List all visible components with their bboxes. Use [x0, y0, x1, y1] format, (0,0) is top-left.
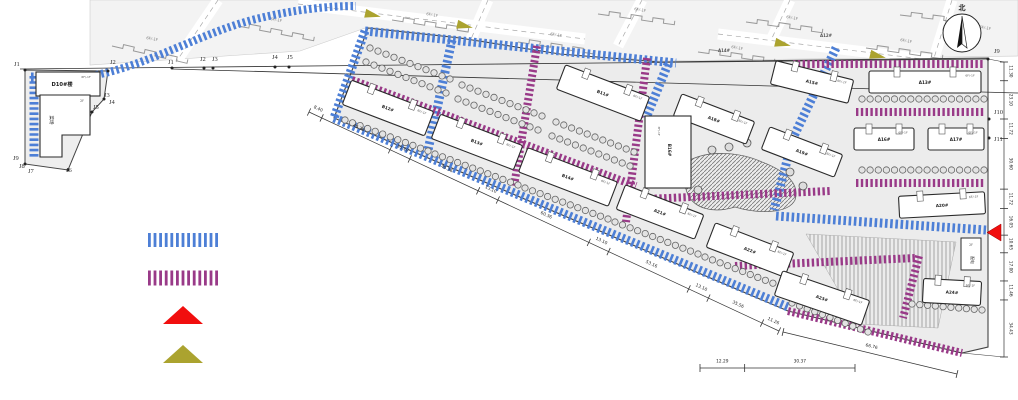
- tree-icon: [963, 306, 969, 312]
- dimension-value: 35.56: [731, 299, 745, 310]
- dimension-tick: [760, 319, 763, 326]
- tree-icon: [672, 242, 678, 248]
- tree-icon: [432, 151, 438, 157]
- tree-icon: [470, 165, 476, 171]
- tree-icon: [786, 168, 794, 176]
- existing-building-label: A12#: [820, 33, 833, 38]
- tree-icon: [552, 196, 558, 202]
- tree-icon: [515, 104, 521, 110]
- stair-core: [866, 124, 872, 134]
- tree-icon: [539, 113, 545, 119]
- tree-icon: [561, 122, 567, 128]
- survey-point-dot: [274, 66, 277, 69]
- survey-point-dot: [107, 70, 110, 73]
- dimension-tick: [707, 294, 710, 301]
- tree-icon: [867, 167, 873, 173]
- tree-icon: [665, 239, 671, 245]
- tree-icon: [596, 151, 602, 157]
- tree-icon: [883, 167, 889, 173]
- tree-icon: [395, 137, 401, 143]
- tree-icon: [487, 108, 493, 114]
- tree-icon: [732, 265, 738, 271]
- survey-point-dot: [987, 58, 990, 61]
- dimension-value: 16.05: [1007, 216, 1013, 229]
- building-label: A17#: [950, 137, 963, 142]
- dimension-value: 8.40: [312, 104, 323, 114]
- tree-icon: [527, 124, 533, 130]
- dimension-value: 11.72: [1007, 123, 1013, 136]
- tree-icon: [702, 254, 708, 260]
- tree-icon: [924, 167, 930, 173]
- tree-icon: [940, 167, 946, 173]
- tree-icon: [439, 154, 445, 160]
- tree-icon: [576, 128, 582, 134]
- tree-icon: [850, 323, 856, 329]
- tree-icon: [603, 154, 609, 160]
- dimension-tick: [476, 187, 479, 194]
- stair-core: [950, 67, 956, 77]
- tree-icon: [477, 168, 483, 174]
- tree-icon: [979, 307, 985, 313]
- tree-icon: [485, 171, 491, 177]
- tree-icon: [932, 96, 938, 102]
- tree-icon: [956, 96, 962, 102]
- tree-icon: [582, 207, 588, 213]
- dimension-value: 23.10: [1008, 94, 1014, 107]
- tree-icon: [415, 63, 421, 69]
- tree-icon: [419, 81, 425, 87]
- tree-icon: [891, 167, 897, 173]
- building-label: B16#: [667, 144, 672, 157]
- tree-icon: [372, 128, 378, 134]
- building-label: D10#楼: [51, 80, 73, 88]
- stair-core: [960, 189, 967, 199]
- building-floors: 6F/-1F: [969, 195, 979, 199]
- tree-icon: [491, 94, 497, 100]
- tree-icon: [940, 96, 946, 102]
- tree-icon: [917, 302, 923, 308]
- tree-icon: [900, 96, 906, 102]
- tree-icon: [956, 305, 962, 311]
- building-label: A24#: [946, 289, 959, 295]
- tree-icon: [883, 96, 889, 102]
- tree-icon: [981, 96, 987, 102]
- tree-icon: [916, 167, 922, 173]
- tree-icon: [423, 67, 429, 73]
- stair-core: [917, 191, 924, 201]
- tree-icon: [463, 99, 469, 105]
- tree-icon: [940, 304, 946, 310]
- tree-icon: [431, 70, 437, 76]
- tree-icon: [627, 225, 633, 231]
- tree-icon: [387, 68, 393, 74]
- tree-icon: [567, 202, 573, 208]
- stair-core: [939, 124, 945, 134]
- dimension-tick: [687, 285, 690, 292]
- tree-icon: [948, 304, 954, 310]
- building: A16#6F/-1F: [854, 124, 914, 150]
- legend-red-triangle-swatch: [163, 306, 203, 324]
- tree-icon: [443, 90, 449, 96]
- tree-icon: [387, 134, 393, 140]
- tree-icon: [650, 233, 656, 239]
- dimension-value: 17.00: [1008, 261, 1014, 274]
- tree-icon: [575, 205, 581, 211]
- tree-icon: [631, 149, 637, 155]
- existing-building-label: A14#: [718, 48, 731, 53]
- tree-icon: [956, 167, 962, 173]
- dimension-tick: [307, 108, 310, 115]
- tree-icon: [924, 96, 930, 102]
- tree-icon: [799, 182, 807, 190]
- tree-icon: [965, 96, 971, 102]
- building-floors: 3F/-1F: [657, 126, 661, 136]
- tree-icon: [363, 59, 369, 65]
- tree-icon: [483, 91, 489, 97]
- tree-icon: [607, 140, 613, 146]
- dimension-extension: [962, 353, 1004, 357]
- dimension-extension: [988, 59, 1004, 62]
- tree-icon: [375, 48, 381, 54]
- tree-icon: [537, 190, 543, 196]
- north-label: 北: [959, 3, 966, 12]
- tree-icon: [549, 133, 555, 139]
- tree-icon: [973, 167, 979, 173]
- tree-icon: [427, 84, 433, 90]
- tree-icon: [908, 96, 914, 102]
- building-label: A13#: [919, 80, 932, 85]
- survey-point-dot: [212, 67, 215, 70]
- tree-icon: [612, 219, 618, 225]
- tree-icon: [379, 65, 385, 71]
- survey-point-label: J5: [93, 104, 99, 111]
- building-floors: 6F/-1F: [965, 74, 975, 78]
- dimension-value: 34.43: [1008, 322, 1014, 335]
- tree-icon: [383, 51, 389, 57]
- tree-icon: [515, 182, 521, 188]
- tree-icon: [971, 306, 977, 312]
- dimension-value: 11.72: [1007, 193, 1013, 206]
- tree-icon: [535, 127, 541, 133]
- tree-icon: [544, 193, 550, 199]
- dimension-value: 66.76: [865, 342, 879, 351]
- survey-point-dot: [171, 67, 174, 70]
- building-floors: 6F/-1F: [968, 131, 978, 135]
- tree-icon: [417, 145, 423, 151]
- survey-point-label: J2: [200, 56, 206, 63]
- building-floors: 6F/-1F: [898, 131, 908, 135]
- tree-icon: [557, 136, 563, 142]
- site-plan-drawing: 6F/-1F6F/-1F6F/-1F6F/-1F6F/-1F6F/-1F6F/-…: [0, 0, 1018, 400]
- tree-icon: [857, 326, 863, 332]
- building-floors: 6F/-1F: [966, 283, 976, 287]
- tree-icon: [454, 159, 460, 165]
- stair-core: [935, 275, 942, 285]
- tree-icon: [605, 216, 611, 222]
- tree-icon: [909, 301, 915, 307]
- survey-point-label: J7: [28, 168, 35, 175]
- tree-icon: [435, 87, 441, 93]
- dimension-value: 30.60: [1008, 158, 1014, 171]
- survey-point-label: J3: [104, 92, 110, 99]
- tree-icon: [499, 97, 505, 103]
- dimension-value: 53.16: [645, 259, 659, 270]
- tree-icon: [623, 146, 629, 152]
- tree-icon: [932, 167, 938, 173]
- tree-icon: [399, 57, 405, 63]
- survey-point-label: J4: [272, 54, 279, 61]
- tree-icon: [519, 121, 525, 127]
- legend-olive-triangle-swatch: [163, 345, 203, 363]
- tree-icon: [865, 329, 871, 335]
- tree-icon: [657, 236, 663, 242]
- tree-icon: [755, 274, 761, 280]
- survey-point-label: J9: [994, 48, 1000, 55]
- tree-icon: [467, 85, 473, 91]
- building-floors: 2F: [80, 99, 84, 103]
- tree-icon: [973, 96, 979, 102]
- tree-icon: [981, 167, 987, 173]
- tree-icon: [724, 263, 730, 269]
- tree-icon: [619, 160, 625, 166]
- survey-point-label: J6: [66, 167, 73, 174]
- tree-icon: [717, 260, 723, 266]
- tree-icon: [522, 185, 528, 191]
- tree-icon: [380, 131, 386, 137]
- tree-icon: [680, 245, 686, 251]
- tree-icon: [500, 176, 506, 182]
- dimension-value: 12.29: [716, 359, 729, 365]
- tree-icon: [471, 102, 477, 108]
- tree-icon: [747, 271, 753, 277]
- dimension-tick: [320, 114, 323, 121]
- tree-icon: [694, 186, 702, 194]
- red-entrance-arrow-icon: [987, 224, 1001, 241]
- tree-icon: [367, 45, 373, 51]
- tree-icon: [627, 163, 633, 169]
- tree-icon: [611, 157, 617, 163]
- tree-icon: [859, 96, 865, 102]
- tree-icon: [859, 167, 865, 173]
- dimension-value: 10.65: [1008, 238, 1014, 251]
- dimension-tick: [587, 239, 590, 246]
- survey-point-label: J8: [19, 163, 25, 170]
- tree-icon: [391, 54, 397, 60]
- survey-point-label: J3: [212, 56, 218, 63]
- tree-icon: [511, 118, 517, 124]
- tree-icon: [965, 167, 971, 173]
- tree-icon: [580, 145, 586, 151]
- tree-icon: [564, 139, 570, 145]
- tree-icon: [455, 96, 461, 102]
- dimension-value: 13.10: [595, 236, 609, 247]
- tree-icon: [507, 100, 513, 106]
- tree-icon: [371, 62, 377, 68]
- tree-icon: [634, 228, 640, 234]
- tree-icon: [762, 277, 768, 283]
- tree-icon: [531, 110, 537, 116]
- tree-icon: [687, 248, 693, 254]
- tree-icon: [572, 142, 578, 148]
- tree-icon: [439, 73, 445, 79]
- tree-icon: [529, 188, 535, 194]
- tree-icon: [600, 137, 606, 143]
- dimension-tick: [607, 248, 610, 255]
- tree-icon: [900, 167, 906, 173]
- stair-core: [894, 67, 900, 77]
- tree-icon: [948, 96, 954, 102]
- tree-icon: [708, 146, 716, 154]
- dimension-value: 30.37: [794, 359, 807, 365]
- survey-point-dot: [24, 69, 27, 72]
- tree-icon: [425, 148, 431, 154]
- survey-point-label: J1: [168, 59, 174, 66]
- dimension-value: 13.10: [694, 282, 708, 293]
- dimension-tick: [388, 146, 391, 153]
- tree-icon: [410, 142, 416, 148]
- tree-icon: [695, 251, 701, 257]
- entrance-arrow: [987, 224, 1001, 241]
- legend: [148, 240, 218, 363]
- tree-icon: [560, 199, 566, 205]
- tree-icon: [875, 96, 881, 102]
- tree-icon: [495, 111, 501, 117]
- tree-icon: [447, 156, 453, 162]
- survey-point-dot: [988, 137, 991, 140]
- building-label: A20#: [936, 202, 949, 208]
- tree-icon: [479, 105, 485, 111]
- tree-icon: [619, 222, 625, 228]
- tree-icon: [891, 96, 897, 102]
- survey-point-label: J2: [110, 59, 116, 66]
- survey-point-dot: [288, 66, 291, 69]
- dimension-tick: [496, 196, 499, 203]
- building: A13#6F/-1F: [869, 67, 981, 93]
- tree-icon: [411, 77, 417, 83]
- tree-icon: [642, 230, 648, 236]
- dimension-value: 11.46: [1008, 284, 1014, 297]
- tree-icon: [725, 143, 733, 151]
- tree-icon: [908, 167, 914, 173]
- building-floors: 6F/-1F: [81, 75, 91, 79]
- tree-icon: [459, 82, 465, 88]
- tree-icon: [447, 76, 453, 82]
- survey-point-dot: [988, 118, 991, 121]
- tree-icon: [740, 268, 746, 274]
- dimension-tick: [777, 327, 780, 334]
- dimension-value: 11.30: [1008, 65, 1014, 78]
- site-plan-canvas: 6F/-1F6F/-1F6F/-1F6F/-1F6F/-1F6F/-1F6F/-…: [0, 0, 1018, 400]
- building-label: 配电: [970, 256, 975, 264]
- tree-icon: [492, 173, 498, 179]
- survey-point-label: J9: [13, 155, 19, 162]
- survey-point-label: J1: [14, 61, 20, 68]
- tree-icon: [553, 119, 559, 125]
- tree-icon: [709, 257, 715, 263]
- tree-icon: [462, 162, 468, 168]
- tree-icon: [590, 210, 596, 216]
- dimension-value: 11.26: [766, 316, 780, 327]
- tree-icon: [402, 139, 408, 145]
- survey-point-label: J4: [109, 99, 116, 106]
- tree-icon: [770, 280, 776, 286]
- tree-icon: [523, 107, 529, 113]
- tree-icon: [597, 213, 603, 219]
- building-label: A16#: [878, 137, 891, 142]
- building-label: 菜场: [48, 116, 55, 125]
- tree-icon: [507, 179, 513, 185]
- tree-icon: [342, 117, 348, 123]
- building: A17#6F/-1F: [928, 124, 984, 150]
- survey-point-label: J5: [287, 54, 293, 61]
- tree-icon: [407, 60, 413, 66]
- building-floors: 2F: [969, 243, 973, 247]
- survey-point-label: J10: [994, 109, 1003, 116]
- survey-point-dot: [203, 67, 206, 70]
- tree-icon: [584, 131, 590, 137]
- tree-icon: [395, 71, 401, 77]
- tree-icon: [948, 167, 954, 173]
- tree-icon: [503, 114, 509, 120]
- tree-icon: [867, 96, 873, 102]
- tree-icon: [916, 96, 922, 102]
- tree-icon: [875, 167, 881, 173]
- survey-point-label: J11: [994, 136, 1003, 143]
- tree-icon: [592, 134, 598, 140]
- tree-icon: [615, 143, 621, 149]
- tree-icon: [403, 74, 409, 80]
- tree-icon: [568, 125, 574, 131]
- tree-icon: [364, 125, 370, 131]
- tree-icon: [475, 88, 481, 94]
- tree-icon: [588, 148, 594, 154]
- dimension-tick: [408, 155, 411, 162]
